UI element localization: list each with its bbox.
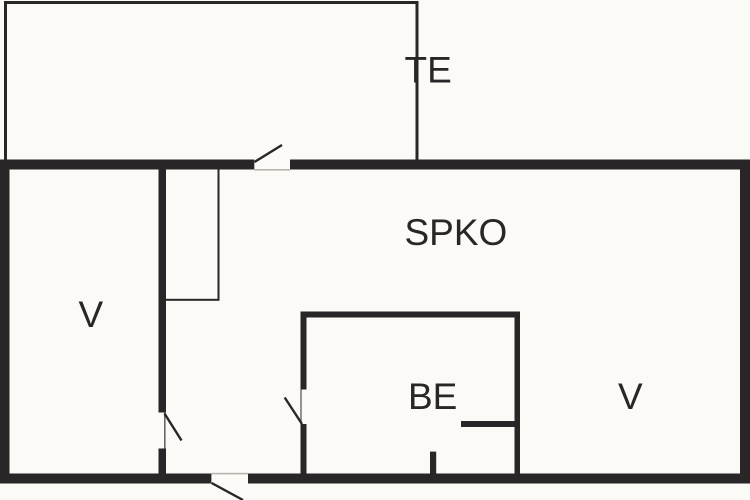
svg-text:TE: TE [405, 50, 452, 91]
svg-text:V: V [618, 376, 643, 417]
svg-text:SPKO: SPKO [405, 212, 508, 253]
svg-text:V: V [79, 294, 104, 335]
svg-text:BE: BE [408, 376, 457, 417]
